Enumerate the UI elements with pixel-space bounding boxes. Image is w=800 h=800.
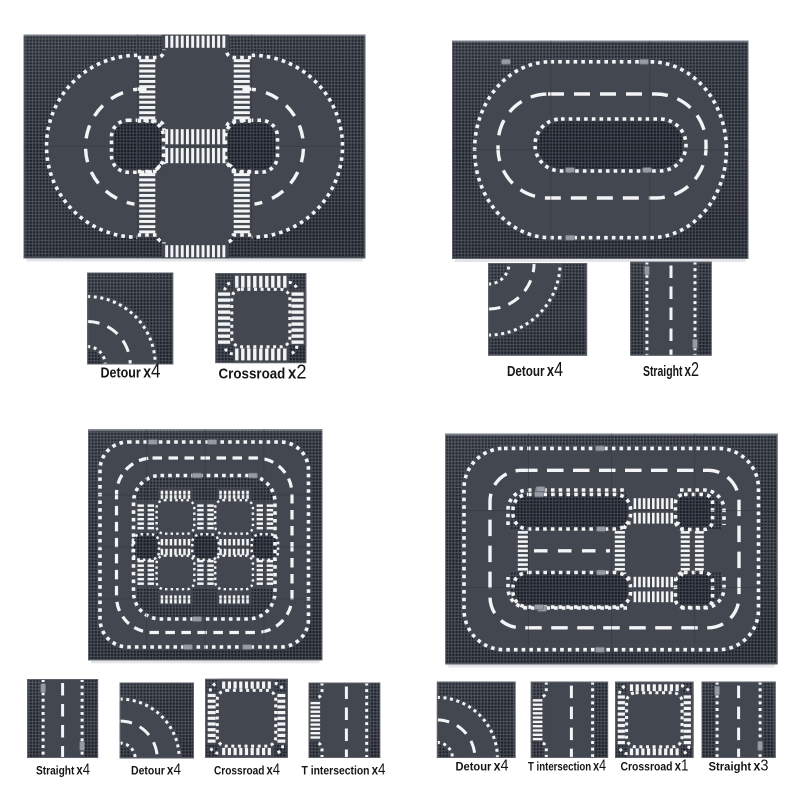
- svg-text:Crossroad x1: Crossroad x1: [621, 758, 689, 775]
- svg-text:Detour x4: Detour x4: [131, 762, 181, 779]
- svg-text:Straight x3: Straight x3: [709, 758, 769, 775]
- svg-text:Crossroad x4: Crossroad x4: [214, 762, 280, 779]
- svg-text:T intersection x4: T intersection x4: [302, 762, 386, 779]
- svg-text:Straight x4: Straight x4: [36, 762, 90, 779]
- svg-text:T intersection x4: T intersection x4: [528, 758, 606, 775]
- svg-text:Detour x4: Detour x4: [456, 758, 509, 775]
